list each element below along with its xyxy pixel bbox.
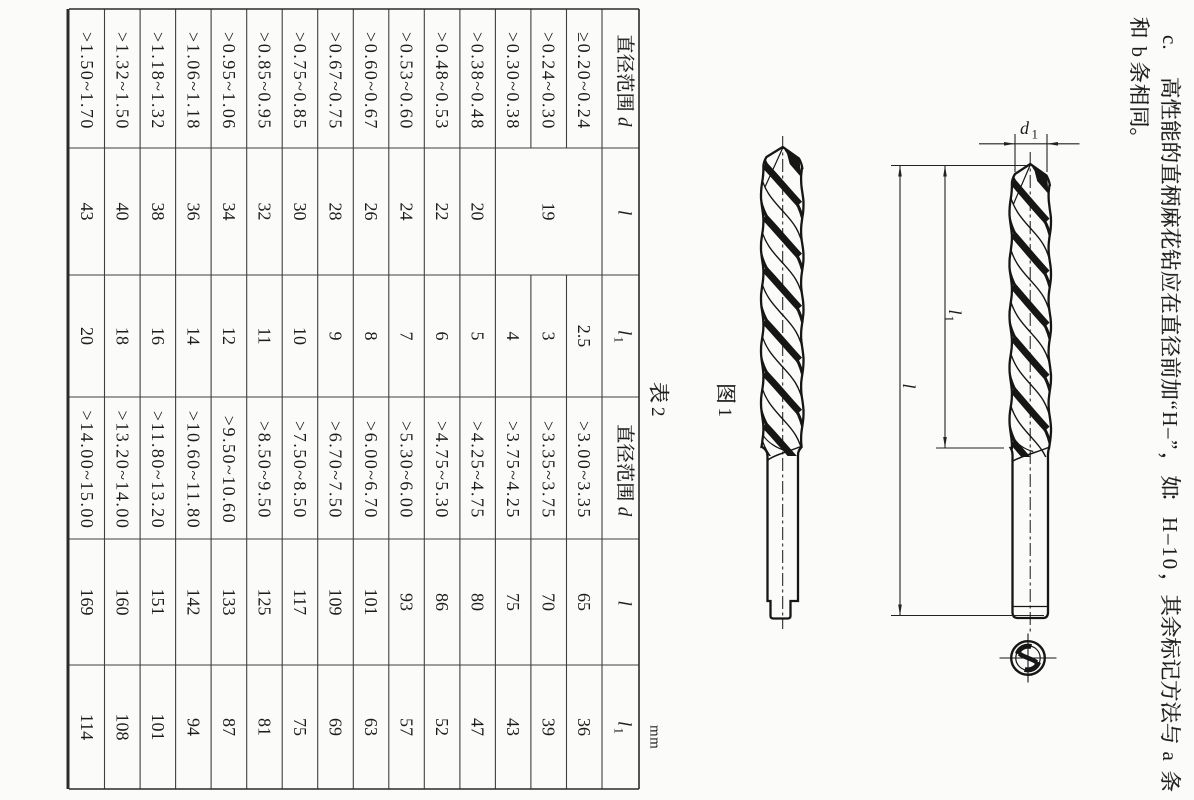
svg-text:>0.60~0.67: >0.60~0.67 — [361, 32, 381, 130]
svg-text:28: 28 — [326, 203, 346, 221]
svg-text:22: 22 — [432, 203, 452, 221]
svg-text:>3.75~4.25: >3.75~4.25 — [503, 421, 523, 519]
svg-text:mm: mm — [647, 725, 663, 749]
svg-text:>0.53~0.60: >0.53~0.60 — [397, 32, 417, 130]
svg-text:101: 101 — [361, 589, 381, 616]
svg-text:16: 16 — [148, 327, 168, 345]
svg-text:≥0.20~0.24: ≥0.20~0.24 — [574, 32, 594, 130]
svg-text:114: 114 — [77, 714, 97, 740]
svg-text:l: l — [614, 210, 635, 215]
svg-text:>1.32~1.50: >1.32~1.50 — [112, 32, 132, 130]
svg-text:36: 36 — [183, 203, 203, 221]
svg-text:86: 86 — [432, 593, 452, 611]
svg-text:7: 7 — [397, 332, 417, 341]
svg-text:108: 108 — [112, 714, 132, 741]
svg-text:1: 1 — [612, 337, 627, 344]
svg-text:l: l — [614, 330, 635, 335]
svg-text:d: d — [1020, 118, 1030, 138]
svg-text:>6.00~6.70: >6.00~6.70 — [361, 421, 381, 519]
svg-text:>11.80~13.20: >11.80~13.20 — [148, 411, 168, 529]
svg-text:40: 40 — [112, 203, 132, 221]
svg-text:l: l — [614, 721, 635, 726]
svg-text:b: b — [1127, 47, 1151, 58]
svg-text:70: 70 — [539, 593, 559, 611]
svg-text:>0.30~0.38: >0.30~0.38 — [503, 32, 523, 130]
svg-text:63: 63 — [361, 718, 381, 736]
svg-text:14: 14 — [183, 327, 203, 345]
svg-text:43: 43 — [503, 718, 523, 736]
svg-text:3: 3 — [539, 332, 559, 341]
svg-text:109: 109 — [326, 589, 346, 616]
svg-text:H–10: H–10 — [1158, 517, 1182, 571]
svg-text:24: 24 — [397, 203, 417, 221]
svg-text:38: 38 — [148, 203, 168, 221]
svg-text:43: 43 — [77, 203, 97, 221]
svg-text:>9.50~10.60: >9.50~10.60 — [219, 416, 239, 524]
svg-text:1: 1 — [942, 316, 957, 323]
svg-text:8: 8 — [361, 332, 381, 341]
svg-text:>13.20~14.00: >13.20~14.00 — [112, 411, 132, 530]
svg-text:87: 87 — [219, 718, 239, 736]
svg-text:39: 39 — [539, 718, 559, 736]
svg-text:12: 12 — [219, 327, 239, 345]
svg-text:93: 93 — [397, 593, 417, 611]
svg-text:2.5: 2.5 — [574, 325, 594, 348]
svg-text:l: l — [899, 384, 919, 389]
svg-text:75: 75 — [290, 718, 310, 736]
svg-text:l: l — [614, 601, 635, 606]
svg-text:52: 52 — [432, 718, 452, 736]
svg-text:>4.25~4.75: >4.25~4.75 — [468, 421, 488, 519]
svg-text:>1.50~1.70: >1.50~1.70 — [77, 32, 97, 130]
svg-text:36: 36 — [574, 718, 594, 736]
svg-text:c.: c. — [1158, 35, 1182, 50]
svg-text:d: d — [614, 117, 635, 127]
svg-text:117: 117 — [290, 589, 310, 615]
svg-text:>8.50~9.50: >8.50~9.50 — [254, 421, 274, 519]
svg-text:>14.00~15.00: >14.00~15.00 — [77, 411, 97, 530]
svg-text:101: 101 — [148, 714, 168, 741]
svg-text:6: 6 — [432, 332, 452, 341]
svg-text:26: 26 — [361, 203, 381, 221]
svg-text:133: 133 — [219, 589, 239, 616]
svg-text:1: 1 — [714, 408, 735, 418]
svg-text:142: 142 — [183, 589, 203, 616]
svg-text:a: a — [1158, 752, 1182, 762]
svg-text:34: 34 — [219, 203, 239, 221]
svg-text:>1.18~1.32: >1.18~1.32 — [148, 32, 168, 130]
svg-text:1: 1 — [1032, 127, 1039, 142]
svg-text:>3.35~3.75: >3.35~3.75 — [539, 421, 559, 519]
svg-text:47: 47 — [468, 718, 488, 736]
svg-text:>5.30~6.00: >5.30~6.00 — [397, 421, 417, 519]
svg-text:>3.00~3.35: >3.00~3.35 — [574, 421, 594, 519]
svg-text:“H–”: “H–” — [1158, 401, 1182, 451]
svg-text:10: 10 — [290, 327, 310, 345]
svg-text:65: 65 — [574, 593, 594, 611]
svg-text:>0.95~1.06: >0.95~1.06 — [219, 32, 239, 130]
svg-text:>0.24~0.30: >0.24~0.30 — [539, 32, 559, 130]
svg-text:>7.50~8.50: >7.50~8.50 — [290, 421, 310, 519]
svg-text:>10.60~11.80: >10.60~11.80 — [183, 411, 203, 529]
svg-text:>0.38~0.48: >0.38~0.48 — [468, 32, 488, 130]
svg-text:19: 19 — [539, 203, 559, 221]
svg-text:2: 2 — [647, 407, 668, 417]
svg-text:94: 94 — [183, 718, 203, 736]
svg-text:5: 5 — [468, 332, 488, 341]
svg-text:18: 18 — [112, 327, 132, 345]
svg-text:l: l — [945, 310, 965, 315]
svg-text:20: 20 — [77, 327, 97, 345]
svg-text:>0.85~0.95: >0.85~0.95 — [254, 32, 274, 130]
svg-text:169: 169 — [77, 589, 97, 616]
svg-text:>0.75~0.85: >0.75~0.85 — [290, 32, 310, 130]
svg-text:30: 30 — [290, 203, 310, 221]
svg-text:>0.67~0.75: >0.67~0.75 — [326, 32, 346, 130]
svg-text:9: 9 — [326, 332, 346, 341]
svg-text:151: 151 — [148, 589, 168, 616]
svg-text:80: 80 — [468, 593, 488, 611]
svg-text:1: 1 — [612, 728, 627, 735]
svg-text:d: d — [614, 507, 635, 517]
svg-text:160: 160 — [112, 589, 132, 616]
svg-text:>6.70~7.50: >6.70~7.50 — [326, 421, 346, 519]
svg-text:4: 4 — [503, 332, 523, 341]
svg-text:81: 81 — [254, 718, 274, 736]
svg-text:>0.48~0.53: >0.48~0.53 — [432, 32, 452, 130]
svg-text:75: 75 — [503, 593, 523, 611]
svg-text:>1.06~1.18: >1.06~1.18 — [183, 32, 203, 130]
svg-text:>4.75~5.30: >4.75~5.30 — [432, 421, 452, 519]
svg-text:69: 69 — [326, 718, 346, 736]
svg-text:125: 125 — [254, 589, 274, 616]
svg-text:32: 32 — [254, 203, 274, 221]
svg-text:20: 20 — [468, 203, 488, 221]
svg-text:11: 11 — [254, 327, 274, 344]
svg-text:57: 57 — [397, 718, 417, 736]
